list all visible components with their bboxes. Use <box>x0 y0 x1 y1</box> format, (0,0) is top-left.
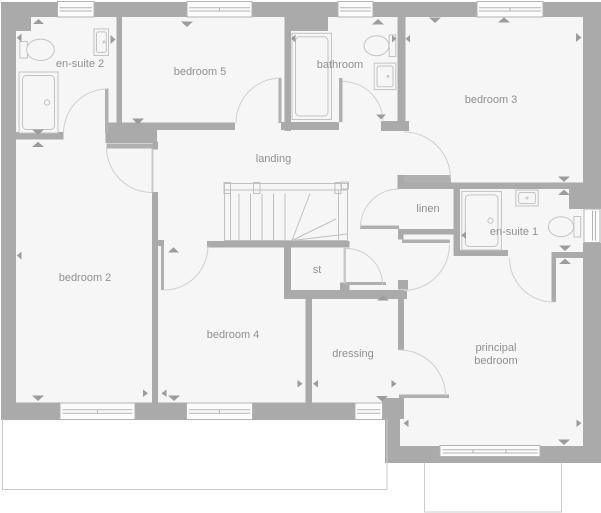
svg-text:linen: linen <box>416 203 439 215</box>
svg-text:principal: principal <box>476 342 517 354</box>
svg-text:bedroom: bedroom <box>474 355 517 367</box>
svg-text:bedroom 4: bedroom 4 <box>207 329 260 341</box>
svg-text:bathroom: bathroom <box>317 59 363 71</box>
svg-text:st: st <box>313 264 322 276</box>
svg-text:dressing: dressing <box>332 348 374 360</box>
svg-text:en-suite 2: en-suite 2 <box>56 58 104 70</box>
svg-text:en-suite 1: en-suite 1 <box>490 226 538 238</box>
svg-text:bedroom 5: bedroom 5 <box>174 66 227 78</box>
svg-text:bedroom 3: bedroom 3 <box>465 94 518 106</box>
svg-text:bedroom 2: bedroom 2 <box>59 272 112 284</box>
svg-text:landing: landing <box>256 153 291 165</box>
